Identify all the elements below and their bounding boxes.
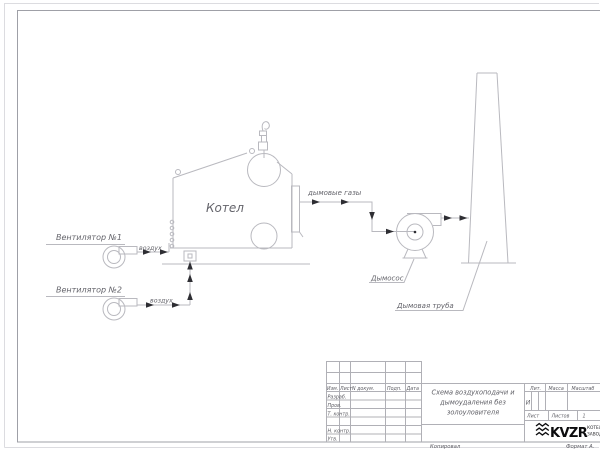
tb-scale-label: Масштаб — [572, 386, 595, 392]
tb-lit-label: Лит. — [529, 386, 541, 392]
tb-row-approved: Утв. — [328, 436, 338, 442]
schematic-canvas: Вентилятор №1 Вентилятор №2 воздух возду… — [0, 0, 600, 450]
company-name-line2: ЗАВОД РЭ — [587, 432, 600, 438]
boiler-outline — [162, 122, 310, 264]
boiler-lower-drum — [251, 223, 277, 249]
air-label-2: воздух — [150, 298, 173, 305]
paper-edge — [5, 4, 600, 448]
tb-row-n-control: Н. контр. — [328, 428, 351, 434]
kvzr-logo-icon — [536, 424, 549, 435]
kvzr-logo-text: KVZR — [550, 426, 588, 441]
tb-header-doc: N докум. — [352, 386, 374, 392]
flue-gas-label: дымовые газы — [307, 189, 362, 197]
fan-1-symbol — [103, 246, 137, 268]
tb-sheets-label: Листов — [551, 414, 570, 420]
company-name-line1: КОТЕЛЬНЫЙ — [587, 424, 600, 431]
tb-header-sign: Подп. — [387, 386, 402, 392]
tb-lit-value: И — [526, 400, 531, 407]
safety-valve — [259, 122, 270, 158]
copied-by-label: Копировал — [430, 444, 461, 450]
tb-row-checked: Пров. — [328, 403, 342, 409]
doc-title-line2: дымоудаления без — [439, 399, 506, 407]
drawing-frame — [18, 11, 600, 443]
doc-title-line1: Схема воздухоподачи и — [431, 389, 515, 397]
label-leader-lines — [46, 241, 487, 311]
company-logo: KVZR КОТЕЛЬНЫЙ ЗАВОД РЭ — [536, 424, 600, 441]
format-label: Формат А. — [566, 444, 594, 450]
economizer-outlet — [292, 186, 304, 237]
air-label-1: воздух — [139, 245, 162, 252]
tb-row-developed: Разраб. — [328, 394, 347, 400]
tb-row-t-control: Т. контр. — [328, 411, 350, 417]
boiler-label: Котел — [206, 201, 244, 215]
tb-header-date: Дата — [406, 386, 419, 392]
drawing-sheet: Вентилятор №1 Вентилятор №2 воздух возду… — [0, 0, 600, 450]
fan-2-label: Вентилятор №2 — [56, 286, 122, 295]
smoke-exhauster-symbol — [397, 214, 470, 259]
chimney-label: Дымовая труба — [396, 302, 454, 310]
exhauster-label: Дымосос — [370, 275, 404, 283]
fan-1-label: Вентилятор №1 — [56, 233, 122, 242]
fan-2-symbol — [103, 298, 137, 320]
tb-sheet-label: Лист — [526, 414, 539, 420]
tb-header-izm: Изм. — [327, 386, 338, 392]
doc-title-line3: золоуловителя — [447, 409, 499, 417]
tb-header-list: Лист — [339, 386, 352, 392]
boiler-upper-drum — [248, 154, 281, 187]
chimney-shape — [461, 73, 516, 263]
tb-mass-label: Масса — [549, 386, 564, 392]
tb-sheets-value: 1 — [583, 414, 586, 420]
